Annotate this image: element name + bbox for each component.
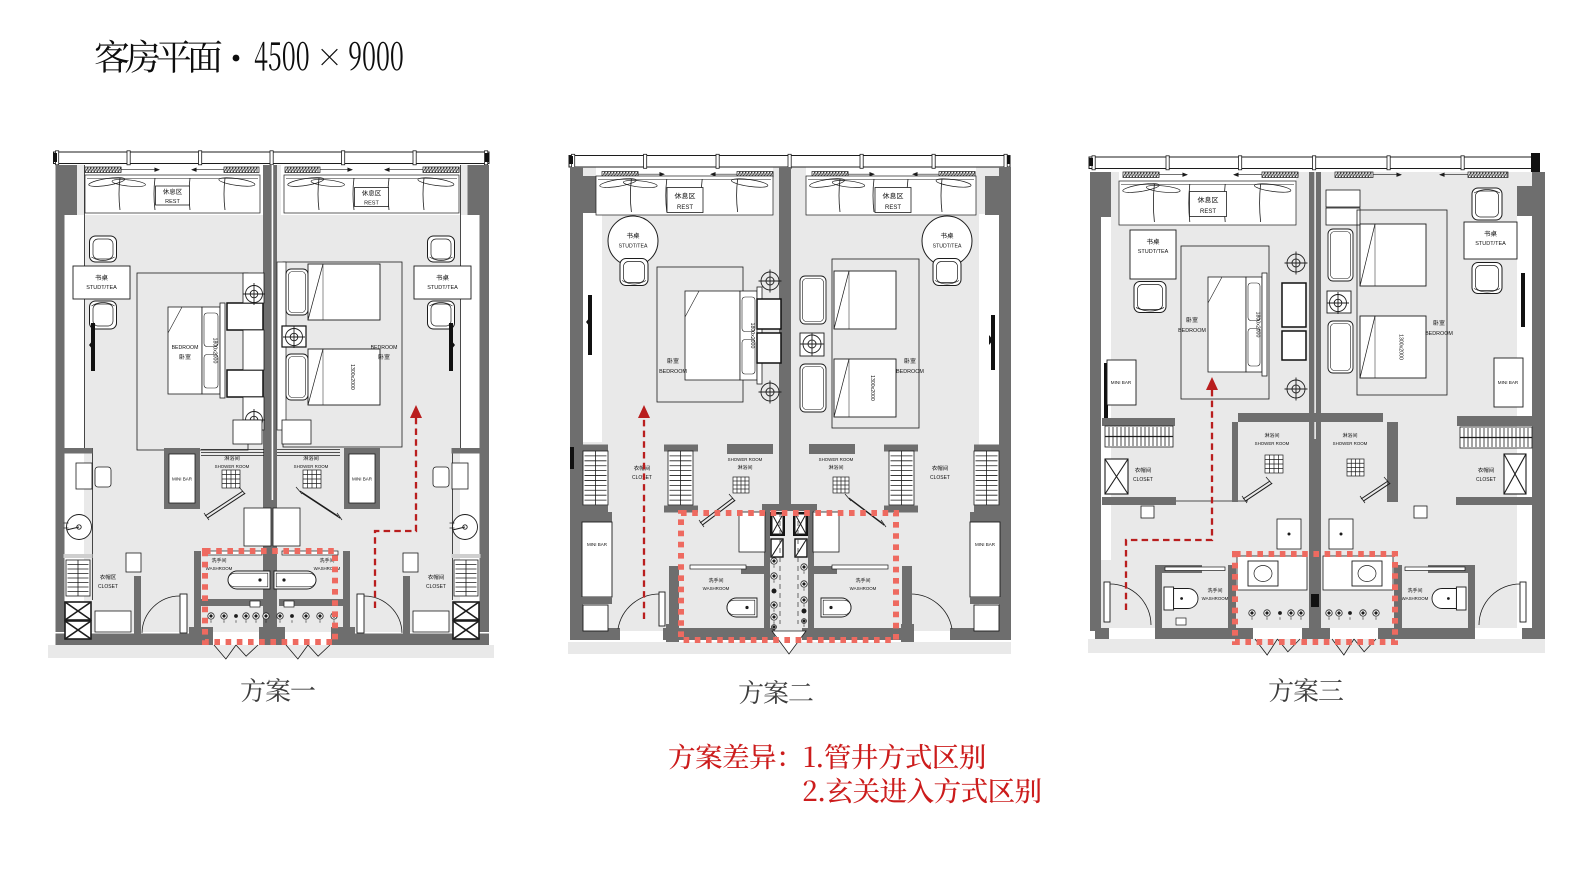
svg-text:CLOSET: CLOSET bbox=[426, 584, 446, 590]
svg-text:MINI BAR: MINI BAR bbox=[1498, 380, 1519, 385]
svg-text:1300x2000: 1300x2000 bbox=[869, 375, 875, 401]
svg-text:MINI BAR: MINI BAR bbox=[587, 542, 608, 547]
svg-text:REST: REST bbox=[165, 199, 180, 205]
svg-text:MINI BAR: MINI BAR bbox=[1111, 380, 1132, 385]
svg-text:WASHROOM: WASHROOM bbox=[1202, 596, 1229, 601]
svg-text:1800x2000: 1800x2000 bbox=[1255, 312, 1261, 338]
svg-text:SHOWER ROOM: SHOWER ROOM bbox=[1333, 441, 1368, 446]
svg-text:SHOWER ROOM: SHOWER ROOM bbox=[294, 464, 329, 469]
svg-text:SHOWER ROOM: SHOWER ROOM bbox=[819, 457, 854, 462]
svg-text:BEDROOM: BEDROOM bbox=[659, 369, 687, 375]
svg-text:BEDROOM: BEDROOM bbox=[896, 369, 924, 375]
svg-text:STUDT/TEA: STUDT/TEA bbox=[619, 244, 648, 250]
svg-text:STUDT/TEA: STUDT/TEA bbox=[427, 285, 458, 291]
svg-text:STUDT/TEA: STUDT/TEA bbox=[933, 244, 962, 250]
svg-text:CLOSET: CLOSET bbox=[1476, 477, 1496, 483]
svg-text:WASHROOM: WASHROOM bbox=[850, 586, 877, 591]
svg-text:SHOWER ROOM: SHOWER ROOM bbox=[728, 457, 763, 462]
svg-text:MINI BAR: MINI BAR bbox=[975, 542, 996, 547]
svg-text:STUDT/TEA: STUDT/TEA bbox=[1138, 249, 1169, 255]
svg-text:REST: REST bbox=[364, 200, 379, 206]
svg-text:BEDROOM: BEDROOM bbox=[1425, 331, 1453, 337]
svg-text:WASHROOM: WASHROOM bbox=[206, 566, 233, 571]
svg-text:BEDROOM: BEDROOM bbox=[371, 345, 398, 351]
svg-text:REST: REST bbox=[885, 205, 901, 211]
svg-text:CLOSET: CLOSET bbox=[1133, 477, 1153, 483]
svg-text:MINI BAR: MINI BAR bbox=[352, 477, 373, 482]
svg-text:MINI BAR: MINI BAR bbox=[172, 477, 193, 482]
svg-text:BEDROOM: BEDROOM bbox=[1178, 328, 1206, 334]
svg-text:SHOWER ROOM: SHOWER ROOM bbox=[215, 464, 250, 469]
svg-text:1800x2000: 1800x2000 bbox=[212, 338, 218, 364]
svg-text:CLOSET: CLOSET bbox=[98, 584, 118, 590]
svg-text:STUDT/TEA: STUDT/TEA bbox=[86, 285, 117, 291]
svg-text:1300x2000: 1300x2000 bbox=[1398, 334, 1404, 360]
svg-text:WASHROOM: WASHROOM bbox=[1402, 596, 1429, 601]
svg-text:CLOSET: CLOSET bbox=[632, 475, 652, 481]
svg-text:BEDROOM: BEDROOM bbox=[172, 345, 199, 351]
svg-text:1800x2000: 1800x2000 bbox=[749, 323, 755, 349]
svg-text:SHOWER ROOM: SHOWER ROOM bbox=[1255, 441, 1290, 446]
svg-text:1300x2000: 1300x2000 bbox=[349, 364, 355, 390]
svg-text:STUDT/TEA: STUDT/TEA bbox=[1475, 241, 1506, 247]
svg-text:WASHROOM: WASHROOM bbox=[703, 586, 730, 591]
svg-text:REST: REST bbox=[677, 205, 693, 211]
svg-text:CLOSET: CLOSET bbox=[930, 475, 950, 481]
svg-text:REST: REST bbox=[1200, 209, 1216, 215]
